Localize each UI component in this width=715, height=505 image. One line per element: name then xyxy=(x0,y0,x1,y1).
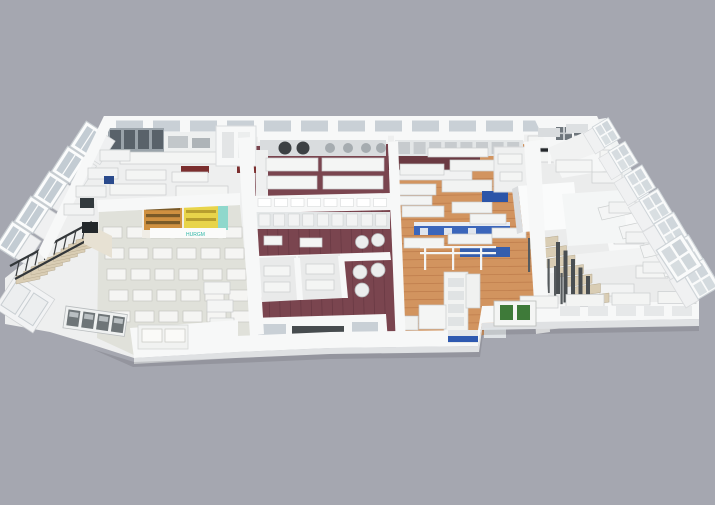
svg-text:HURGM: HURGM xyxy=(186,232,205,238)
